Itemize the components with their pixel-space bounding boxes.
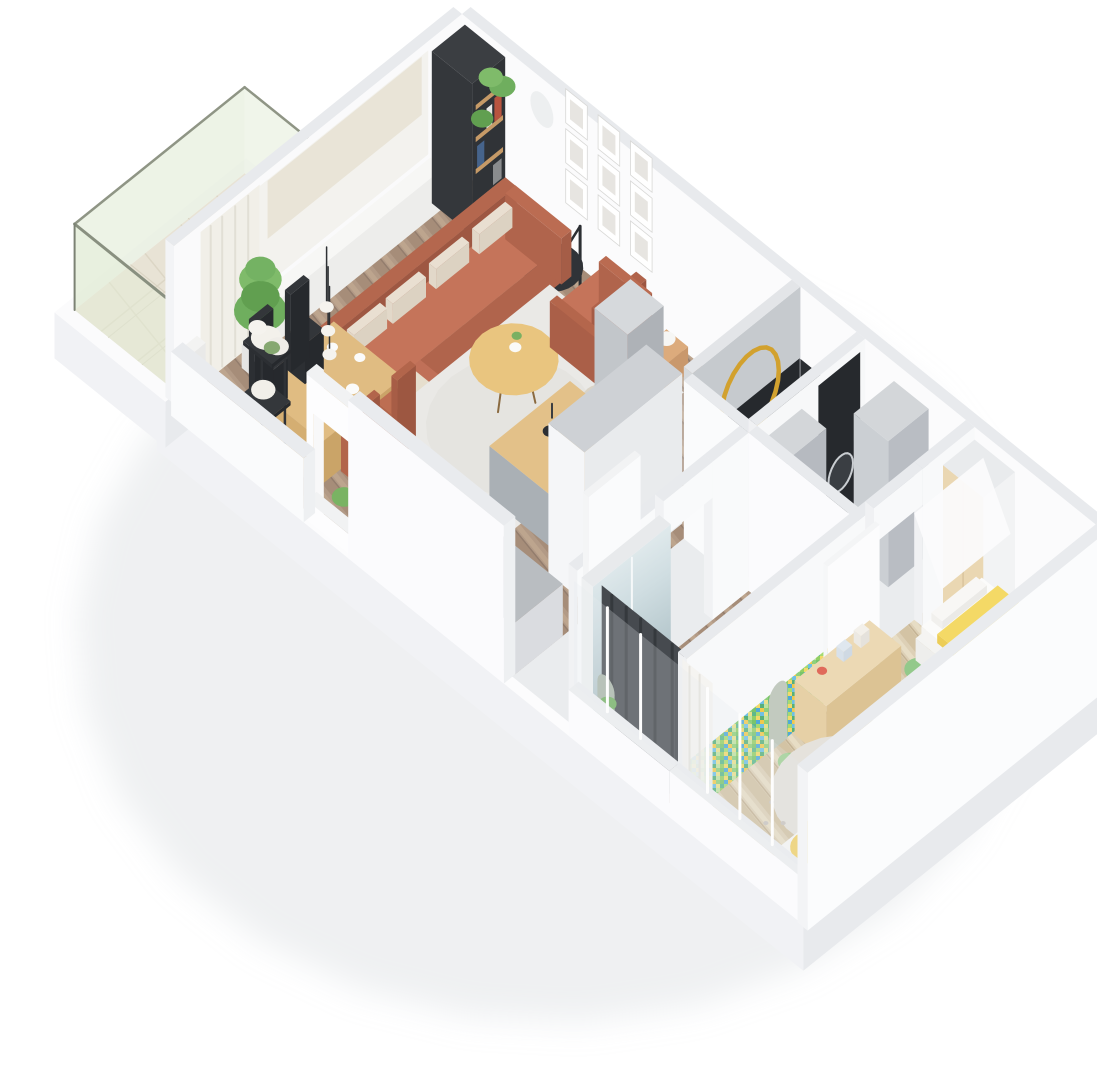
wall-kitchen-near	[504, 516, 516, 683]
bookshelf-plant	[479, 68, 503, 88]
pendant-globe	[320, 301, 334, 313]
dining-chair-black-back	[291, 280, 310, 373]
bedroom-wall-a	[713, 433, 749, 620]
bookshelf-plant	[471, 110, 493, 128]
plant-foliage	[241, 281, 280, 312]
parapet-living-near	[304, 449, 316, 522]
apartment-isometric-render	[0, 0, 1097, 1080]
plant-foliage	[245, 257, 275, 282]
pendant-globe	[321, 325, 335, 337]
white-flowers	[251, 380, 275, 400]
outer-wall-end	[798, 765, 808, 931]
floor-plan-canvas	[0, 0, 1097, 1080]
scene-primitives	[55, 7, 1097, 1022]
white-flowers	[248, 320, 266, 335]
sofa-arm	[561, 230, 571, 284]
bookshelf	[432, 51, 472, 236]
